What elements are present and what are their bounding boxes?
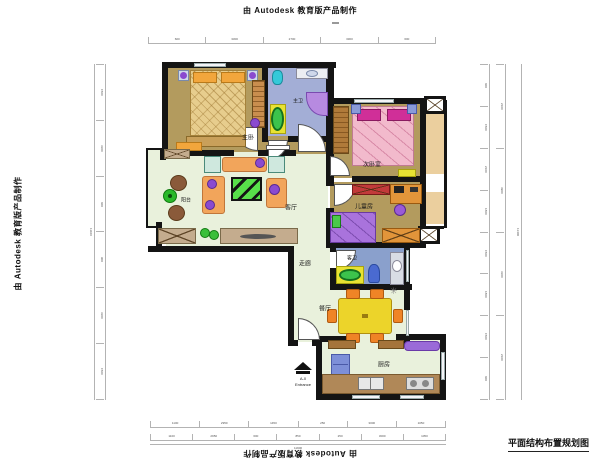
dim-label: 1800 <box>480 191 488 233</box>
wardrobe <box>333 106 349 154</box>
room-label-master-bedroom: 主卧 <box>242 133 254 142</box>
dining-table-center <box>362 314 368 318</box>
dim-label: 1500 <box>96 64 104 121</box>
drawing-title: 平面结构布置规划图 <box>508 436 589 452</box>
balcony-table-center <box>168 194 172 198</box>
balcony-wall <box>146 148 166 150</box>
dim-label: 3300 <box>321 37 378 43</box>
shaft-box <box>424 96 446 114</box>
dim-label: 11400 <box>512 228 520 236</box>
balcony-floor <box>148 150 166 228</box>
stove-burner <box>410 380 417 387</box>
kitchen-cabinet-purple <box>404 341 440 351</box>
fridge <box>331 354 350 376</box>
sink-basin <box>392 260 402 272</box>
dim-label: 600 <box>379 37 436 43</box>
cabinet <box>382 228 420 243</box>
balcony-wall <box>146 148 148 228</box>
dimension-line-bottom-1: 11002950145025030001050 <box>150 416 446 428</box>
dim-label: 1500 <box>96 344 104 400</box>
master-bed-pillow <box>193 72 217 83</box>
dimension-line-bottom-2: 1100295060085025030001050 <box>150 429 446 441</box>
desk-chair <box>394 204 406 216</box>
entrance-arrow-base <box>296 371 310 374</box>
dim-label: 1100 <box>150 421 200 427</box>
room-label-corridor: 走廊 <box>299 259 311 268</box>
dim-label: 250 <box>299 421 348 427</box>
coffee-table-rug <box>231 177 262 201</box>
wall-segment <box>288 340 298 346</box>
dim-label: 1050 <box>404 434 446 440</box>
master-bed-pillow <box>221 72 245 83</box>
sun-decoration-icon: ✳ <box>390 286 398 297</box>
sofa-cushion <box>255 158 265 168</box>
dim-label: 2100 <box>496 316 504 400</box>
stove-burner <box>422 380 429 387</box>
dimension-total-bottom: 11900 <box>150 444 446 450</box>
bathtub <box>271 107 284 131</box>
desk-item <box>410 187 418 192</box>
window <box>406 250 409 282</box>
lamp <box>249 72 256 79</box>
toilet <box>368 264 380 283</box>
dim-label: 600 <box>96 177 104 233</box>
autodesk-watermark-top: 由 Autodesk 教育版产品制作 <box>243 5 357 16</box>
sofa-cushion <box>269 184 280 195</box>
room-label-second-bedroom: 次卧室 <box>363 160 381 169</box>
window <box>194 63 226 67</box>
fridge-divider <box>333 364 348 365</box>
dim-label: 2950 <box>200 421 249 427</box>
toilet <box>272 70 283 85</box>
right-balcony-floor-1 <box>426 104 444 174</box>
dresser <box>352 184 390 195</box>
shaft-box <box>418 226 440 244</box>
washer <box>339 269 361 281</box>
dim-label: 1100 <box>150 434 193 440</box>
room-label-kids-room: 儿童房 <box>355 202 373 211</box>
dim-label: 2100 <box>496 64 504 149</box>
dim-label: 3000 <box>362 434 404 440</box>
window <box>352 395 380 399</box>
sofa-cushion <box>207 179 217 189</box>
wall-segment <box>288 246 294 346</box>
entrance-arrow-icon <box>294 362 312 370</box>
dim-label: 3300 <box>96 288 104 344</box>
dim-label: 2700 <box>264 37 321 43</box>
side-table <box>204 156 221 173</box>
dimension-total-right: 11400 <box>512 64 522 400</box>
tv <box>240 234 276 239</box>
dim-label: 850 <box>277 434 319 440</box>
dim-label: 600 <box>480 64 488 107</box>
dim-label: 3000 <box>348 421 397 427</box>
wall-segment <box>404 284 410 310</box>
wall-segment <box>312 340 320 346</box>
kids-bed-pillow <box>332 215 341 228</box>
room-label-balcony: 阳台 <box>181 197 191 204</box>
dimension-line-top: 600330027003300600 <box>148 30 436 44</box>
plant <box>209 230 219 240</box>
open-door-leaf <box>266 145 290 150</box>
room-label-master-bath: 主卫 <box>293 98 303 105</box>
dim-label: 600 <box>148 37 206 43</box>
kitchen-shelf <box>328 340 356 349</box>
dining-chair <box>370 289 384 299</box>
desk-computer <box>394 186 404 193</box>
balcony-storage <box>164 149 190 159</box>
label-tag <box>398 169 416 177</box>
nightstand <box>351 104 361 114</box>
floor-plan-canvas: 由 Autodesk 教育版产品制作 由 Autodesk 教育版产品制作 由 … <box>0 0 600 470</box>
dim-label: 600 <box>480 358 488 400</box>
window <box>400 395 424 399</box>
sink-basin <box>306 70 318 77</box>
title-tick-mark <box>332 22 339 24</box>
dim-label: 250 <box>320 434 362 440</box>
window <box>354 99 394 103</box>
side-table <box>268 156 285 173</box>
right-balcony-floor-2 <box>426 192 444 224</box>
dim-label: 1050 <box>397 421 446 427</box>
dining-chair <box>346 289 360 299</box>
dim-label: 3300 <box>206 37 263 43</box>
dim-label: 1450 <box>249 421 298 427</box>
dim-label: 600 <box>235 434 277 440</box>
dim-label: 3300 <box>496 233 504 317</box>
room-label-kitchen: 厨房 <box>378 360 390 369</box>
nightstand <box>407 104 417 114</box>
sofa-cushion <box>205 200 215 210</box>
dim-label: 1500 <box>480 233 488 275</box>
wall-segment <box>316 394 446 400</box>
wall-segment <box>148 246 292 252</box>
room-label-dining-room: 餐厅 <box>319 304 331 313</box>
dim-label: 2950 <box>193 434 235 440</box>
dimension-line-right-mid: 2100390033002100 <box>496 64 506 400</box>
dining-chair <box>393 309 403 323</box>
dim-label: 3900 <box>496 149 504 233</box>
window <box>441 352 445 380</box>
corridor-floor <box>294 248 330 290</box>
dim-label: 1800 <box>480 274 488 316</box>
balcony-wall <box>444 100 447 228</box>
kitchen-sink-divider <box>370 378 371 389</box>
dimension-line-right-inner: 600150021001800150018001500600 <box>480 64 490 400</box>
kitchen-sink <box>358 377 384 390</box>
wall-segment <box>326 176 330 182</box>
dim-label: 2100 <box>480 149 488 191</box>
dim-label: 11100 <box>85 228 93 236</box>
window <box>406 310 409 336</box>
entrance-code: A-0 <box>300 376 306 381</box>
dim-label: 3300 <box>96 121 104 177</box>
dim-label: 1500 <box>480 316 488 358</box>
room-label-living-room: 客厅 <box>285 203 297 212</box>
floor-lamp <box>250 118 260 128</box>
dim-label: 900 <box>96 232 104 288</box>
balcony-chair <box>168 205 185 221</box>
room-label-guest-bath: 客卫 <box>347 255 357 262</box>
entrance-label: Entrance <box>295 382 311 387</box>
wall-segment <box>162 62 168 156</box>
kitchen-shelf <box>378 340 404 349</box>
cabinet <box>158 228 196 244</box>
dimension-total-left: 11100 <box>85 64 95 400</box>
dimension-line-left: 1500330060090033001500 <box>96 64 106 400</box>
dim-label: 1500 <box>480 107 488 149</box>
lamp <box>180 72 187 79</box>
autodesk-watermark-left: 由 Autodesk 教育版产品制作 <box>13 154 24 314</box>
